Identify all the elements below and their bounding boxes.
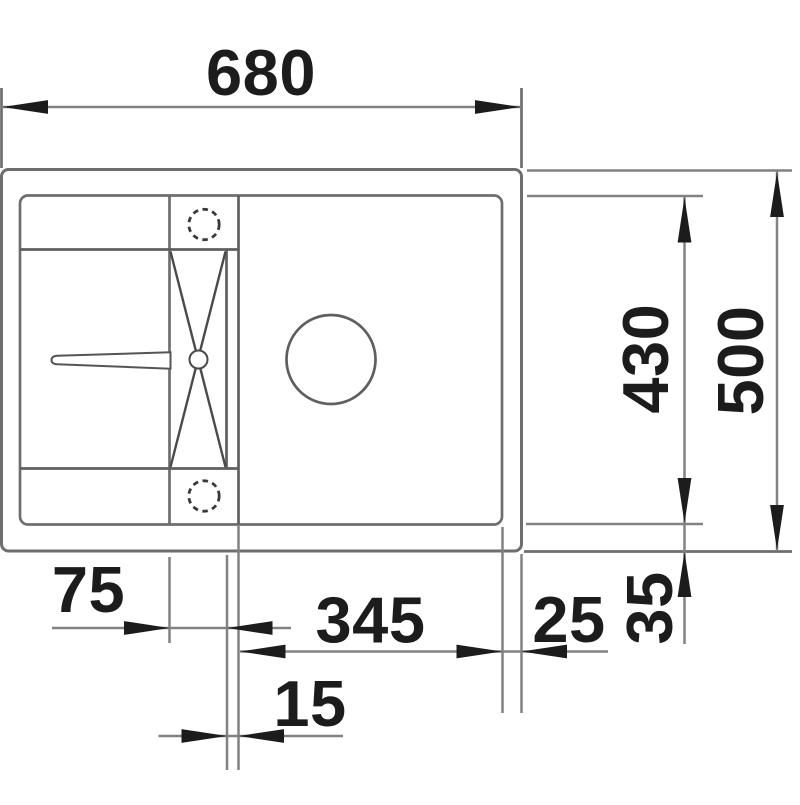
svg-text:15: 15	[273, 667, 346, 740]
svg-text:35: 35	[613, 571, 686, 644]
svg-text:25: 25	[532, 583, 605, 656]
svg-text:75: 75	[52, 553, 125, 626]
svg-text:680: 680	[206, 36, 316, 109]
svg-text:430: 430	[609, 304, 682, 414]
svg-text:345: 345	[316, 584, 426, 657]
svg-text:500: 500	[704, 306, 777, 416]
